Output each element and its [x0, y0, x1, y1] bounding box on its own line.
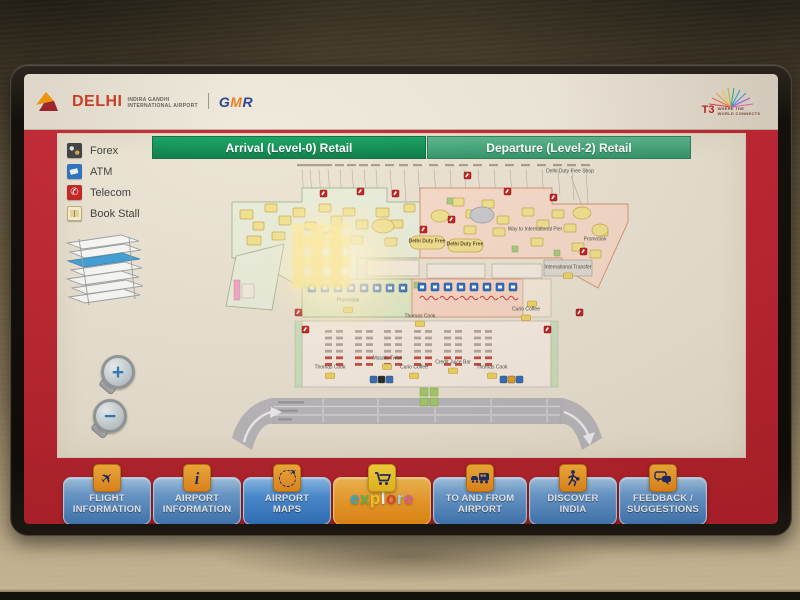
flight-information-button[interactable]: ✈ FLIGHT INFORMATION	[63, 477, 151, 524]
legend-item-telecom: Telecom	[67, 185, 149, 200]
car-bus-icon	[466, 464, 494, 492]
map-legend: Forex ATM Telecom Book Stall	[67, 143, 149, 227]
discover-india-label: DISCOVER INDIA	[530, 493, 616, 515]
information-icon: i	[183, 464, 211, 492]
legend-item-forex: Forex	[67, 143, 149, 158]
to-and-from-airport-label: TO AND FROM AIRPORT	[434, 493, 526, 515]
label-line1: FEEDBACK /	[633, 493, 693, 504]
gmr-letter-m: M	[230, 94, 242, 110]
shelf-gap	[0, 592, 800, 600]
kiosk-photo: { "header": { "delhi": {"name": "DELHI",…	[0, 0, 800, 600]
traveler-icon	[559, 464, 587, 492]
label-line1: DISCOVER	[547, 493, 598, 504]
terminal-levels-illustration	[59, 229, 151, 313]
shop-label-curio-coffee: Curio Coffee	[400, 365, 428, 370]
airport-information-label: AIRPORT INFORMATION	[154, 493, 240, 515]
map-label-promotion: Promotion	[337, 298, 360, 303]
t3-title: T3	[702, 105, 715, 116]
map-route-icon: ✈	[273, 464, 301, 492]
shop-label-curio-coffee: Curio Coffee	[512, 307, 540, 312]
shop-label-delhi-duty-free-shop: Delhi Duty Free Shop	[546, 169, 594, 174]
label-line2: AIRPORT	[458, 504, 502, 515]
delhi-airport-logo-icon	[34, 90, 60, 114]
legend-label-telecom: Telecom	[90, 187, 131, 199]
airport-maps-label: AIRPORT MAPS	[244, 493, 330, 515]
label-line1: TO AND FROM	[446, 493, 515, 504]
shop-label-thomas-cook: Thomas Cook	[404, 314, 435, 319]
delhi-logo-subtitle: INDIRA GANDHI INTERNATIONAL AIRPORT	[128, 97, 198, 110]
shop-label-thomas-cook: Thomas Cook	[476, 365, 507, 370]
delhi-subtitle-line1: INDIRA GANDHI	[128, 97, 170, 103]
to-and-from-airport-button[interactable]: TO AND FROM AIRPORT	[433, 477, 527, 524]
label-line1: AIRPORT	[175, 493, 219, 504]
airport-maps-button[interactable]: ✈ AIRPORT MAPS	[243, 477, 331, 524]
gmr-letter-r: R	[242, 94, 253, 110]
map-label-international-transfer: International Transfer	[544, 265, 591, 270]
airplane-icon: ✈	[93, 464, 121, 492]
telecom-icon	[67, 185, 82, 200]
legend-item-atm: ATM	[67, 164, 149, 179]
book-stall-icon	[67, 206, 82, 221]
zoom-out-button[interactable]: −	[91, 399, 127, 435]
shop-label-delhi-duty-free: Delhi Duty Free	[409, 239, 446, 244]
label-line2: SUGGESTIONS	[627, 504, 699, 515]
airport-information-button[interactable]: i AIRPORT INFORMATION	[153, 477, 241, 524]
map-panel: Arrival (Level-0) Retail Departure (Leve…	[57, 133, 746, 458]
zoom-out-icon: −	[93, 399, 127, 433]
shopping-cart-icon	[368, 464, 396, 492]
information-glyph: i	[195, 470, 200, 487]
t3-logo: T3 WHERE THE WORLD CONNECTS	[700, 88, 762, 116]
t3-tagline: WHERE THE WORLD CONNECTS	[717, 106, 760, 116]
terminal-map: Delhi Duty Free Delhi Duty Free Delhi Du…	[152, 160, 692, 454]
shop-label-credit-juice-bar: Credit Juice Bar	[435, 360, 471, 365]
shop-label-thomas-cook: Thomas Cook	[314, 365, 345, 370]
legend-label-forex: Forex	[90, 145, 118, 157]
feedback-suggestions-button[interactable]: FEEDBACK / SUGGESTIONS	[619, 477, 707, 524]
label-line2: INFORMATION	[73, 504, 142, 515]
delhi-subtitle-line2: INTERNATIONAL AIRPORT	[128, 103, 198, 109]
gmr-logo: GMR	[219, 95, 253, 109]
legend-label-book-stall: Book Stall	[90, 208, 140, 220]
explore-button[interactable]: explore	[333, 477, 431, 524]
tab-departure-level2-retail[interactable]: Departure (Level-2) Retail	[427, 136, 691, 159]
tab-arrival-level0-retail[interactable]: Arrival (Level-0) Retail	[152, 136, 426, 159]
zoom-in-icon: +	[101, 355, 135, 389]
legend-item-book-stall: Book Stall	[67, 206, 149, 221]
airplane-glyph: ✈	[97, 468, 116, 488]
flight-information-label: FLIGHT INFORMATION	[64, 493, 150, 515]
delhi-airport-logo: DELHI INDIRA GANDHI INTERNATIONAL AIRPOR…	[72, 93, 253, 110]
shop-label-delhi-duty-free: Delhi Duty Free	[447, 242, 484, 247]
legend-label-atm: ATM	[90, 166, 112, 178]
t3-text: T3 WHERE THE WORLD CONNECTS	[702, 105, 761, 116]
label-line1: FLIGHT	[89, 493, 125, 504]
discover-india-button[interactable]: DISCOVER INDIA	[529, 477, 617, 524]
map-label-promotion: Promotion	[584, 237, 607, 242]
shop-label-masala-twist: Masala Twist	[373, 356, 402, 361]
kiosk-screen: DELHI INDIRA GANDHI INTERNATIONAL AIRPOR…	[24, 74, 778, 524]
brand-strip: DELHI INDIRA GANDHI INTERNATIONAL AIRPOR…	[24, 74, 778, 130]
gmr-letter-g: G	[219, 94, 230, 110]
map-label-way-to-international-pier: Way to International Pier	[508, 227, 563, 232]
zoom-in-button[interactable]: +	[99, 355, 135, 391]
explore-label: explore	[334, 489, 430, 509]
forex-icon	[67, 143, 82, 158]
label-line2: INFORMATION	[163, 504, 232, 515]
t3-tagline-line2: WORLD CONNECTS	[717, 111, 760, 116]
atm-icon	[67, 164, 82, 179]
speech-bubbles-icon	[649, 464, 677, 492]
label-line1: AIRPORT	[265, 493, 309, 504]
terminal-map-canvas	[152, 160, 692, 454]
feedback-suggestions-label: FEEDBACK / SUGGESTIONS	[620, 493, 706, 515]
brand-divider	[208, 93, 209, 109]
label-line2: INDIA	[560, 504, 587, 515]
label-line2: MAPS	[273, 504, 301, 515]
delhi-logo-title: DELHI	[72, 94, 123, 110]
map-plane-glyph: ✈	[287, 465, 299, 478]
